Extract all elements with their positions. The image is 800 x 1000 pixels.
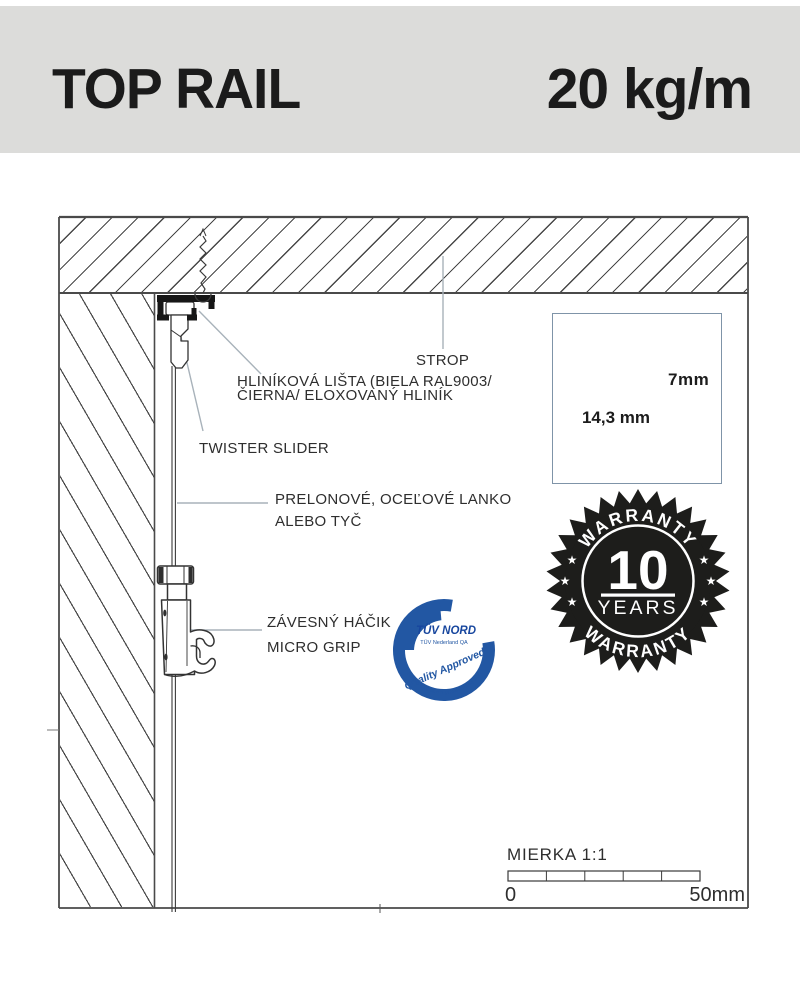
label-hanging-hook-line1: ZÁVESNÝ HÁČIK — [267, 610, 391, 635]
ceiling-screw — [195, 229, 211, 302]
label-hanging-hook: ZÁVESNÝ HÁČIK MICRO GRIP — [267, 610, 391, 660]
scale-bar — [508, 871, 700, 881]
tuv-org-text: TÜV Nederland QA — [420, 639, 468, 646]
label-aluminium-rail: HLINÍKOVÁ LIŠTA (BIELA RAL9003/ ČIERNA/ … — [237, 375, 492, 403]
detail-box — [552, 313, 722, 484]
tuv-certification-badge: TÜV NORD TÜV Nederland QA Quality Approv… — [388, 594, 506, 712]
label-ceiling: STROP — [416, 352, 469, 369]
width-dimension: 14,3 mm — [576, 408, 656, 428]
scale-end-value: 50mm — [645, 884, 745, 907]
twister-slider — [166, 302, 194, 368]
star-icon: ★ — [567, 553, 578, 567]
label-aluminium-rail-line2: ČIERNA/ ELOXOVANÝ HLINÍK — [237, 389, 492, 403]
datasheet-page: TOP RAIL 20 kg/m — [0, 0, 800, 1000]
star-icon: ★ — [567, 595, 578, 609]
label-steel-wire-line1: PRELONOVÉ, OCEĽOVÉ LANKO — [275, 489, 511, 511]
warranty-years: YEARS — [597, 597, 678, 619]
label-steel-wire: PRELONOVÉ, OCEĽOVÉ LANKO ALEBO TYČ — [275, 489, 511, 533]
label-steel-wire-line2: ALEBO TYČ — [275, 511, 511, 533]
label-twister-slider: TWISTER SLIDER — [199, 440, 329, 457]
star-icon: ★ — [560, 574, 571, 588]
warranty-badge: WARRANTY WARRANTY ★ ★ ★ ★ ★ ★ 10 YEARS — [543, 486, 737, 680]
label-hanging-hook-line2: MICRO GRIP — [267, 635, 391, 660]
star-icon: ★ — [706, 574, 717, 588]
height-dimension: 7mm — [668, 370, 709, 390]
micro-grip-hook — [158, 566, 216, 676]
scale-label: MIERKA 1:1 — [507, 845, 608, 865]
scale-start-value: 0 — [505, 884, 516, 907]
warranty-number: 10 — [607, 539, 668, 601]
tuv-brand-text: TÜV NORD — [416, 624, 476, 637]
star-icon: ★ — [699, 553, 710, 567]
star-icon: ★ — [699, 595, 710, 609]
